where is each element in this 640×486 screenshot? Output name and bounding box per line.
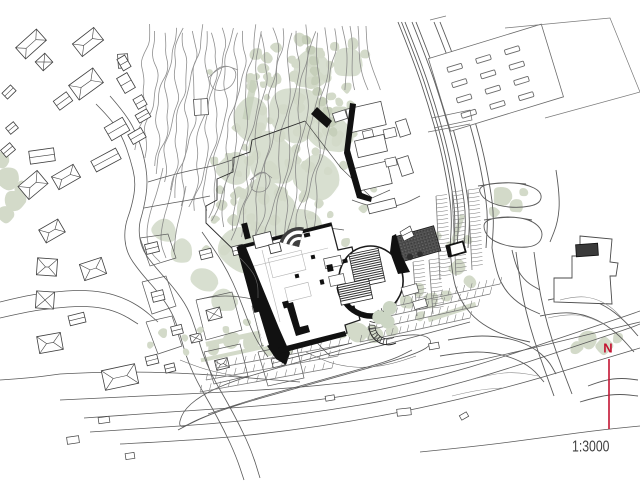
svg-text:1:3000: 1:3000 xyxy=(572,439,610,456)
svg-text:N: N xyxy=(603,341,612,356)
